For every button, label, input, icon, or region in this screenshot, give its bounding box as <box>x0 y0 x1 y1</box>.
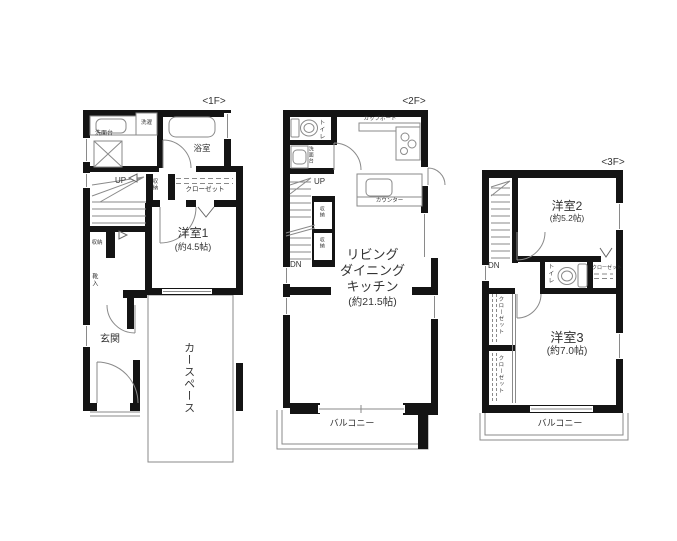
room-label-closet-left-top-3f: クローゼット <box>497 296 503 335</box>
room-label-ldk-line3: キッチン <box>330 280 415 295</box>
toilet-tank <box>291 119 299 137</box>
floor1-structure <box>83 110 243 462</box>
room-label-car-space: カースペース <box>182 342 195 414</box>
room-label-ldk-line1: リビング <box>330 248 415 263</box>
floor1-title: <1F> <box>194 96 234 108</box>
room2-door-arc <box>517 232 545 260</box>
room-label-cupboard-2f: カップボード <box>358 116 402 122</box>
room-label-counter-2f: カウンター <box>357 198 422 204</box>
room3-door-arc <box>517 294 541 318</box>
exterior-door-arc <box>428 168 445 185</box>
toilet-bowl <box>301 120 318 136</box>
room-label-laundry-1f: 洗濯 <box>136 120 157 126</box>
room-label-toilet-2f: トイレ <box>317 119 324 140</box>
room-label-storage-1f: 収納 <box>88 240 106 246</box>
bathtub <box>169 117 215 137</box>
floor3-title: <3F> <box>593 157 633 169</box>
floorplan-image: <1F> 洗面台 洗濯 浴室 UP 収納 クローゼット 洋室1 (約4.5帖) … <box>0 0 677 541</box>
closet-opening-mark <box>198 207 214 217</box>
room-label-room3: 洋室3 <box>532 331 602 346</box>
toilet-tank <box>578 264 587 287</box>
room-label-storage-top-2f: 収納 <box>318 206 324 218</box>
stairs-up-label-1f: UP <box>115 176 126 185</box>
floor2-stairs <box>286 178 315 259</box>
room-label-ldk-line2: ダイニング <box>330 264 415 279</box>
floor3-stairs <box>491 181 510 258</box>
room-label-room2: 洋室2 <box>532 200 602 214</box>
room-label-washstand-2f: 洗面台 <box>307 146 313 164</box>
toilet-bowl <box>558 268 576 285</box>
stairs-up-label-2f: UP <box>314 177 325 186</box>
entrance-door-arc <box>97 362 138 403</box>
room-label-storage-closet-1f: 収納 <box>151 178 157 191</box>
porch-steps <box>90 412 140 416</box>
room-label-closet-1f: クローゼット <box>177 186 233 193</box>
room-label-room1: 洋室1 <box>158 227 228 241</box>
room-label-balcony-3f: バルコニー <box>520 418 600 428</box>
kitchen-sink <box>366 179 392 196</box>
room-size-ldk: (約21.5帖) <box>330 296 415 308</box>
stairs-dn-label-2f: DN <box>290 260 302 269</box>
room-label-washstand-1f: 洗面台 <box>95 131 113 138</box>
washroom-door-arc <box>334 143 361 170</box>
room-label-shoes-1f: 靴入 <box>90 273 97 287</box>
stairs-dir-arrow <box>119 231 127 239</box>
room-label-balcony-2f: バルコニー <box>312 418 392 428</box>
room-size-room1: (約4.5帖) <box>158 242 228 252</box>
stairs-break-line <box>286 225 315 236</box>
stairs-dn-label-3f: DN <box>488 261 500 270</box>
floor2-title: <2F> <box>394 96 434 108</box>
room-size-room2: (約5.2帖) <box>532 214 602 224</box>
room-size-room3: (約7.0帖) <box>532 346 602 358</box>
closet-hanger-dashes <box>176 179 233 184</box>
room-label-toilet-3f: トイレ <box>546 263 553 284</box>
room-label-entrance-1f: 玄関 <box>93 334 127 346</box>
closet-opening-mark <box>600 248 612 257</box>
floor2-balcony-outline <box>277 410 428 449</box>
room-label-closet-left-bottom-3f: クローゼット <box>497 355 503 394</box>
closet-hanger-dashes <box>594 274 613 279</box>
room-label-bath-1f: 浴室 <box>186 144 218 154</box>
room-label-storage-bottom-2f: 収納 <box>318 237 324 249</box>
room-label-closet-right-3f: クローゼット <box>592 266 622 272</box>
